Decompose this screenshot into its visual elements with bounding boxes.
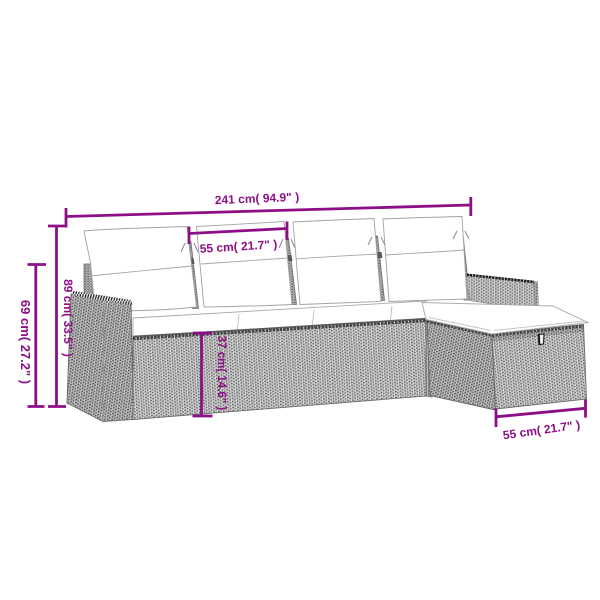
svg-text:55 cm( 21.7" ): 55 cm( 21.7" ): [502, 418, 581, 443]
svg-text:37 cm( 14.6" ): 37 cm( 14.6" ): [215, 336, 227, 411]
svg-text:69 cm( 27.2" ): 69 cm( 27.2" ): [18, 300, 33, 384]
svg-text:241 cm( 94.9" ): 241 cm( 94.9" ): [215, 190, 300, 207]
svg-text:89 cm( 33.5" ): 89 cm( 33.5" ): [61, 279, 75, 357]
